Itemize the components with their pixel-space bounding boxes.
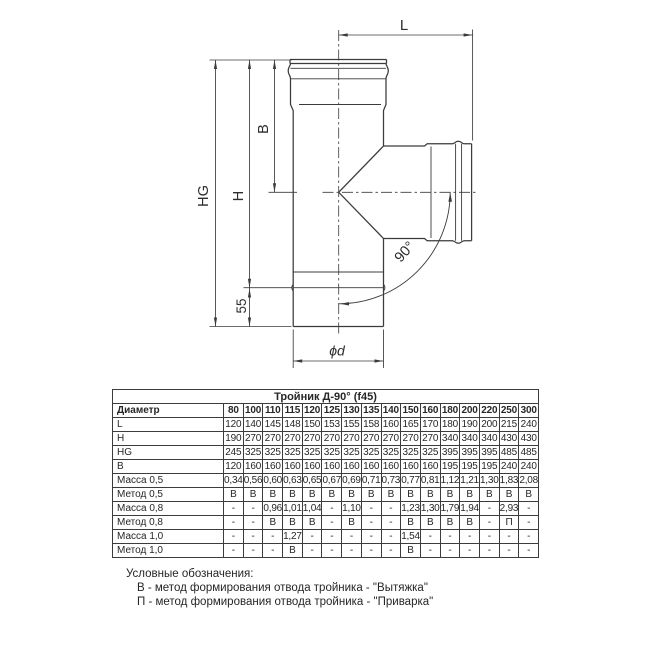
table-cell: - xyxy=(243,502,263,516)
table-cell: 160 xyxy=(361,460,381,474)
diameter-col-header: 135 xyxy=(361,404,381,418)
spec-table: Тройник Д-90° (f45) Диаметр 801001101151… xyxy=(112,389,539,558)
table-cell: 1,23 xyxy=(401,502,421,516)
table-cell: В xyxy=(283,488,303,502)
table-cell: - xyxy=(519,544,539,558)
table-cell: - xyxy=(224,544,244,558)
table-cell: 270 xyxy=(361,432,381,446)
table-cell: - xyxy=(420,544,440,558)
diameter-col-header: 100 xyxy=(243,404,263,418)
table-cell: В xyxy=(460,516,480,530)
table-cell: 1,12 xyxy=(440,474,460,488)
table-cell: В xyxy=(420,516,440,530)
table-cell: 158 xyxy=(361,418,381,432)
table-cell: 270 xyxy=(381,432,401,446)
table-cell: - xyxy=(322,544,342,558)
row-label: H xyxy=(113,432,224,446)
centerlines xyxy=(323,30,479,335)
row-label: Метод 1,0 xyxy=(113,544,224,558)
row-label: Метод 0,8 xyxy=(113,516,224,530)
table-cell: - xyxy=(224,516,244,530)
table-cell: В xyxy=(243,488,263,502)
table-cell: 1,21 xyxy=(460,474,480,488)
table-cell: - xyxy=(302,544,322,558)
table-row: Метод 0,8--ВВВ-В--ВВВВ-П- xyxy=(113,516,539,530)
table-cell: 325 xyxy=(302,446,322,460)
table-cell: 395 xyxy=(460,446,480,460)
table-cell: 0,69 xyxy=(342,474,362,488)
table-cell: 270 xyxy=(302,432,322,446)
table-cell: 270 xyxy=(283,432,303,446)
diameter-header-cell: Диаметр xyxy=(113,404,224,418)
table-cell: 145 xyxy=(263,418,283,432)
table-cell: 1,30 xyxy=(479,474,499,488)
table-cell: 1,94 xyxy=(460,502,480,516)
table-cell: 240 xyxy=(519,418,539,432)
table-cell: 0,34 xyxy=(224,474,244,488)
table-cell: 270 xyxy=(401,432,421,446)
table-row: H190270270270270270270270270270270340340… xyxy=(113,432,539,446)
table-cell: 325 xyxy=(401,446,421,460)
table-row: L120140145148150153155158160165170180190… xyxy=(113,418,539,432)
product-spec-page: L HG H B 55 ϕd 90° Тройник Д-90° (f45) xyxy=(0,0,650,650)
table-cell: 165 xyxy=(401,418,421,432)
table-cell: 240 xyxy=(519,460,539,474)
table-cell: 190 xyxy=(224,432,244,446)
table-cell: 150 xyxy=(302,418,322,432)
table-cell: 160 xyxy=(342,460,362,474)
table-header-row: Диаметр 80100110115120125130135140150160… xyxy=(113,404,539,418)
table-cell: 325 xyxy=(381,446,401,460)
table-cell: 0,73 xyxy=(381,474,401,488)
table-cell: 270 xyxy=(420,432,440,446)
table-cell: 485 xyxy=(519,446,539,460)
table-cell: 1,30 xyxy=(420,502,440,516)
table-cell: 0,77 xyxy=(401,474,421,488)
row-label: Масса 0,5 xyxy=(113,474,224,488)
table-cell: 340 xyxy=(479,432,499,446)
table-row: B120160160160160160160160160160160195195… xyxy=(113,460,539,474)
table-cell: 485 xyxy=(499,446,519,460)
diameter-col-header: 110 xyxy=(263,404,283,418)
table-cell: 325 xyxy=(342,446,362,460)
table-cell: 240 xyxy=(499,460,519,474)
table-cell: 195 xyxy=(460,460,480,474)
dim-label-diameter: ϕd xyxy=(329,343,346,359)
diameter-col-header: 250 xyxy=(499,404,519,418)
table-cell: 430 xyxy=(519,432,539,446)
table-cell: В xyxy=(381,488,401,502)
diameter-col-header: 130 xyxy=(342,404,362,418)
table-cell: В xyxy=(263,516,283,530)
table-row: HG24532532532532532532532532532532539539… xyxy=(113,446,539,460)
table-cell: - xyxy=(243,530,263,544)
legend-item-p: П - метод формирования отвода тройника -… xyxy=(126,595,433,609)
table-cell: В xyxy=(401,544,421,558)
table-row: Масса 0,50,340,560,600,630,650,670,690,7… xyxy=(113,474,539,488)
table-cell: 195 xyxy=(440,460,460,474)
table-cell: В xyxy=(342,488,362,502)
row-label: Масса 0,8 xyxy=(113,502,224,516)
table-cell: В xyxy=(519,488,539,502)
table-cell: 160 xyxy=(401,460,421,474)
table-cell: - xyxy=(342,544,362,558)
table-cell: 0,63 xyxy=(283,474,303,488)
table-cell: - xyxy=(224,530,244,544)
table-cell: 195 xyxy=(479,460,499,474)
table-cell: 325 xyxy=(420,446,440,460)
row-label: B xyxy=(113,460,224,474)
table-cell: - xyxy=(243,544,263,558)
tee-technical-drawing: L HG H B 55 ϕd 90° xyxy=(0,0,650,385)
angle-label: 90° xyxy=(392,239,419,266)
table-cell: 0,67 xyxy=(322,474,342,488)
table-cell: 395 xyxy=(479,446,499,460)
table-cell: - xyxy=(342,530,362,544)
table-cell: 215 xyxy=(499,418,519,432)
table-cell: 325 xyxy=(263,446,283,460)
table-cell: 1,27 xyxy=(283,530,303,544)
spec-table-container: Тройник Д-90° (f45) Диаметр 801001101151… xyxy=(112,389,539,558)
table-cell: 340 xyxy=(440,432,460,446)
table-cell: - xyxy=(519,530,539,544)
diameter-col-header: 115 xyxy=(283,404,303,418)
table-title: Тройник Д-90° (f45) xyxy=(113,390,539,404)
legend-title: Условные обозначения: xyxy=(126,567,433,581)
table-cell: - xyxy=(499,530,519,544)
table-cell: - xyxy=(322,530,342,544)
table-cell: В xyxy=(224,488,244,502)
table-cell: - xyxy=(420,530,440,544)
diameter-col-header: 150 xyxy=(401,404,421,418)
table-cell: В xyxy=(302,488,322,502)
table-cell: - xyxy=(381,530,401,544)
table-cell: 325 xyxy=(243,446,263,460)
table-row: Метод 0,5ВВВВВВВВВВВВВВВВ xyxy=(113,488,539,502)
table-cell: 153 xyxy=(322,418,342,432)
table-cell: - xyxy=(479,544,499,558)
table-cell: - xyxy=(440,530,460,544)
table-cell: 160 xyxy=(283,460,303,474)
table-cell: 325 xyxy=(361,446,381,460)
diameter-col-header: 200 xyxy=(460,404,480,418)
table-row: Масса 1,0---1,27-----1,54------ xyxy=(113,530,539,544)
table-cell: - xyxy=(322,516,342,530)
table-cell: - xyxy=(519,502,539,516)
table-cell: 0,81 xyxy=(420,474,440,488)
extension-lines xyxy=(210,30,473,369)
table-cell: 120 xyxy=(224,460,244,474)
dimension-arrows xyxy=(214,33,473,362)
table-cell: - xyxy=(322,502,342,516)
table-cell: В xyxy=(263,488,283,502)
table-cell: 325 xyxy=(283,446,303,460)
legend-item-v: В - метод формирования отвода тройника -… xyxy=(126,581,433,595)
table-cell: В xyxy=(302,516,322,530)
table-cell: 160 xyxy=(381,418,401,432)
table-row: Масса 0,8--0,961,011,04-1,10--1,231,301,… xyxy=(113,502,539,516)
table-cell: 0,56 xyxy=(243,474,263,488)
table-cell: В xyxy=(499,488,519,502)
table-cell: - xyxy=(224,502,244,516)
dim-label-l: L xyxy=(400,17,408,34)
table-cell: 270 xyxy=(342,432,362,446)
table-cell: 2,08 xyxy=(519,474,539,488)
table-cell: - xyxy=(381,502,401,516)
table-cell: 140 xyxy=(243,418,263,432)
diameter-col-header: 125 xyxy=(322,404,342,418)
row-label: HG xyxy=(113,446,224,460)
table-cell: - xyxy=(460,544,480,558)
table-cell: - xyxy=(479,530,499,544)
table-cell: 160 xyxy=(322,460,342,474)
table-cell: 340 xyxy=(460,432,480,446)
row-label: Масса 1,0 xyxy=(113,530,224,544)
table-cell: 180 xyxy=(440,418,460,432)
table-cell: 1,01 xyxy=(283,502,303,516)
table-cell: - xyxy=(263,544,283,558)
table-cell: 160 xyxy=(263,460,283,474)
table-cell: 170 xyxy=(420,418,440,432)
row-label: L xyxy=(113,418,224,432)
table-cell: 0,60 xyxy=(263,474,283,488)
diameter-col-header: 300 xyxy=(519,404,539,418)
table-cell: В xyxy=(420,488,440,502)
table-cell: 1,83 xyxy=(499,474,519,488)
table-cell: - xyxy=(381,544,401,558)
table-cell: 0,65 xyxy=(302,474,322,488)
table-cell: - xyxy=(243,516,263,530)
table-title-row: Тройник Д-90° (f45) xyxy=(113,390,539,404)
table-cell: 120 xyxy=(224,418,244,432)
table-cell: В xyxy=(440,516,460,530)
table-cell: 155 xyxy=(342,418,362,432)
table-cell: 270 xyxy=(263,432,283,446)
table-cell: 1,79 xyxy=(440,502,460,516)
spec-table-body: Тройник Д-90° (f45) Диаметр 801001101151… xyxy=(113,390,539,558)
table-cell: - xyxy=(381,516,401,530)
table-cell: 200 xyxy=(479,418,499,432)
table-cell: - xyxy=(479,516,499,530)
table-cell: 160 xyxy=(243,460,263,474)
table-cell: - xyxy=(519,516,539,530)
diameter-col-header: 220 xyxy=(479,404,499,418)
dim-label-h: H xyxy=(231,191,247,201)
diameter-col-header: 180 xyxy=(440,404,460,418)
table-cell: 0,71 xyxy=(361,474,381,488)
table-cell: 270 xyxy=(243,432,263,446)
table-cell: В xyxy=(322,488,342,502)
table-cell: - xyxy=(361,530,381,544)
table-cell: 245 xyxy=(224,446,244,460)
table-cell: - xyxy=(361,516,381,530)
table-cell: В xyxy=(460,488,480,502)
table-cell: - xyxy=(302,530,322,544)
table-cell: 148 xyxy=(283,418,303,432)
table-cell: 2,93 xyxy=(499,502,519,516)
table-cell: 270 xyxy=(322,432,342,446)
table-cell: 325 xyxy=(322,446,342,460)
table-cell: - xyxy=(460,530,480,544)
pipe-outline xyxy=(288,60,388,327)
table-cell: 1,10 xyxy=(342,502,362,516)
diameter-col-header: 80 xyxy=(224,404,244,418)
table-cell: 160 xyxy=(420,460,440,474)
diameter-col-header: 120 xyxy=(302,404,322,418)
dim-label-55: 55 xyxy=(234,298,249,313)
table-cell: - xyxy=(479,502,499,516)
legend: Условные обозначения: В - метод формиров… xyxy=(126,567,433,609)
table-cell: - xyxy=(440,544,460,558)
table-cell: - xyxy=(361,544,381,558)
table-cell: В xyxy=(401,516,421,530)
table-cell: В xyxy=(342,516,362,530)
table-cell: В xyxy=(361,488,381,502)
dim-label-b: B xyxy=(256,124,272,134)
table-cell: 0,96 xyxy=(263,502,283,516)
table-cell: 430 xyxy=(499,432,519,446)
table-cell: 190 xyxy=(460,418,480,432)
table-cell: В xyxy=(479,488,499,502)
row-label: Метод 0,5 xyxy=(113,488,224,502)
table-cell: В xyxy=(401,488,421,502)
diameter-col-header: 160 xyxy=(420,404,440,418)
table-cell: В xyxy=(440,488,460,502)
table-cell: П xyxy=(499,516,519,530)
table-cell: 1,04 xyxy=(302,502,322,516)
table-cell: В xyxy=(283,544,303,558)
diameter-col-header: 140 xyxy=(381,404,401,418)
table-cell: В xyxy=(283,516,303,530)
table-cell: - xyxy=(499,544,519,558)
table-cell: 1,54 xyxy=(401,530,421,544)
table-cell: 395 xyxy=(440,446,460,460)
table-row: Метод 1,0---В-----В------ xyxy=(113,544,539,558)
dim-label-hg: HG xyxy=(196,185,212,207)
table-cell: - xyxy=(361,502,381,516)
table-cell: - xyxy=(263,530,283,544)
table-cell: 160 xyxy=(381,460,401,474)
table-cell: 160 xyxy=(302,460,322,474)
